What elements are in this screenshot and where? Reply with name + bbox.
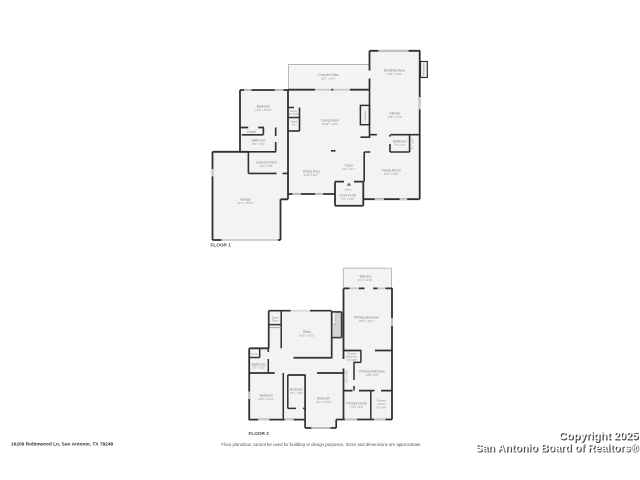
svg-text:6'0" x 11'1": 6'0" x 11'1" xyxy=(342,167,355,171)
svg-text:3'0"x5'9": 3'0"x5'9" xyxy=(289,112,299,116)
svg-text:Pantry: Pantry xyxy=(290,109,298,113)
svg-text:14'8" x 8'5": 14'8" x 8'5" xyxy=(366,373,379,377)
svg-text:5'5" x 10'9": 5'5" x 10'9" xyxy=(290,391,303,395)
svg-text:Closet: Closet xyxy=(377,402,385,406)
svg-text:16'5" x 15'9": 16'5" x 15'9" xyxy=(384,172,399,176)
svg-text:7'11" x 8'6": 7'11" x 8'6" xyxy=(350,405,363,409)
svg-text:Primary Bedroom: Primary Bedroom xyxy=(354,315,379,319)
svg-text:Front Porch: Front Porch xyxy=(340,193,357,197)
svg-text:Office: Office xyxy=(303,330,311,334)
svg-text:Stairs: Stairs xyxy=(290,120,298,124)
svg-text:5'0" x 7'11": 5'0" x 7'11" xyxy=(252,366,265,370)
svg-text:Copyright 2025: Copyright 2025 xyxy=(559,430,638,442)
svg-text:15'8" x 18'7": 15'8" x 18'7" xyxy=(359,319,374,323)
svg-text:Foyer: Foyer xyxy=(345,164,354,168)
svg-text:13'6" x 10'10": 13'6" x 10'10" xyxy=(255,108,271,112)
svg-text:Stairs: Stairs xyxy=(272,316,280,320)
svg-text:18'11" x 18'6": 18'11" x 18'6" xyxy=(322,122,338,126)
svg-text:5'0"x3'9": 5'0"x3'9" xyxy=(347,358,357,362)
svg-text:Dining Area: Dining Area xyxy=(303,170,320,174)
svg-text:Laundry Room: Laundry Room xyxy=(256,161,277,165)
svg-text:7'5" x 5'4": 7'5" x 5'4" xyxy=(394,143,406,147)
svg-text:Bedroom: Bedroom xyxy=(257,105,270,109)
svg-text:Floor plans/tour cannot be use: Floor plans/tour cannot be used for buil… xyxy=(221,442,421,447)
svg-text:FLOOR 1: FLOOR 1 xyxy=(211,243,232,248)
svg-text:Entry: Entry xyxy=(345,187,352,191)
svg-text:Garage: Garage xyxy=(240,198,251,202)
svg-text:11'2" x 13'11": 11'2" x 13'11" xyxy=(316,400,332,404)
svg-text:Fireplace: Fireplace xyxy=(363,110,367,122)
svg-text:Breakfast Area: Breakfast Area xyxy=(384,69,405,73)
svg-text:Balcony: Balcony xyxy=(360,274,372,278)
svg-text:12'6" x 11'7": 12'6" x 11'7" xyxy=(304,173,319,177)
svg-text:Bathroom: Bathroom xyxy=(252,139,266,143)
svg-text:3'1" x 5'4": 3'1" x 5'4" xyxy=(411,138,415,150)
svg-text:Living Room: Living Room xyxy=(321,119,339,123)
svg-text:San Antonio Board of Realtors®: San Antonio Board of Realtors® xyxy=(475,442,638,454)
svg-text:Bedroom: Bedroom xyxy=(317,397,330,401)
svg-text:Family Room: Family Room xyxy=(382,169,401,173)
svg-text:Bathroom: Bathroom xyxy=(252,362,266,366)
svg-text:9'10" x 5'8": 9'10" x 5'8" xyxy=(260,164,273,168)
svg-text:10'8" x 12'9": 10'8" x 12'9" xyxy=(387,72,402,76)
svg-text:Refrigerator: Refrigerator xyxy=(422,63,426,77)
svg-text:21'5" x 20'10": 21'5" x 20'10" xyxy=(237,201,253,205)
svg-text:Covered Patio: Covered Patio xyxy=(318,73,338,77)
svg-text:4'11" x 9'5": 4'11" x 9'5" xyxy=(344,370,348,383)
svg-text:Bathroom: Bathroom xyxy=(393,140,407,144)
svg-text:Primary Bathroom: Primary Bathroom xyxy=(359,370,385,374)
svg-text:13'6" x 17'3": 13'6" x 17'3" xyxy=(388,115,403,119)
svg-text:10'6" x 13'11": 10'6" x 13'11" xyxy=(258,397,274,401)
svg-text:Primary: Primary xyxy=(347,352,357,356)
svg-text:16'0" x 13'10": 16'0" x 13'10" xyxy=(299,334,315,338)
svg-text:Kitchen: Kitchen xyxy=(390,112,401,116)
svg-text:Bedroom: Bedroom xyxy=(290,388,303,392)
svg-text:FLOOR 2: FLOOR 2 xyxy=(249,431,270,436)
svg-text:6'2" x 5'10": 6'2" x 5'10" xyxy=(341,197,354,201)
svg-text:6'3"x8'6": 6'3"x8'6" xyxy=(376,405,386,409)
svg-text:Bathroom: Bathroom xyxy=(346,355,358,359)
svg-text:Bedroom: Bedroom xyxy=(260,394,273,398)
svg-text:up: up xyxy=(292,124,295,127)
svg-text:Primary: Primary xyxy=(377,399,387,403)
svg-text:8'0" x 5'2": 8'0" x 5'2" xyxy=(253,142,265,146)
svg-text:Down: Down xyxy=(272,319,279,323)
svg-text:36'0" x 25'0": 36'0" x 25'0" xyxy=(321,77,336,81)
svg-text:15'1" x 4'10": 15'1" x 4'10" xyxy=(358,278,373,282)
svg-text:16206 Robinwood Ln, San Antoni: 16206 Robinwood Ln, San Antonio, TX 7824… xyxy=(11,442,114,448)
svg-text:Primary Closet: Primary Closet xyxy=(346,402,367,406)
svg-text:Closet: Closet xyxy=(247,130,256,134)
svg-text:Closet: Closet xyxy=(251,352,259,356)
